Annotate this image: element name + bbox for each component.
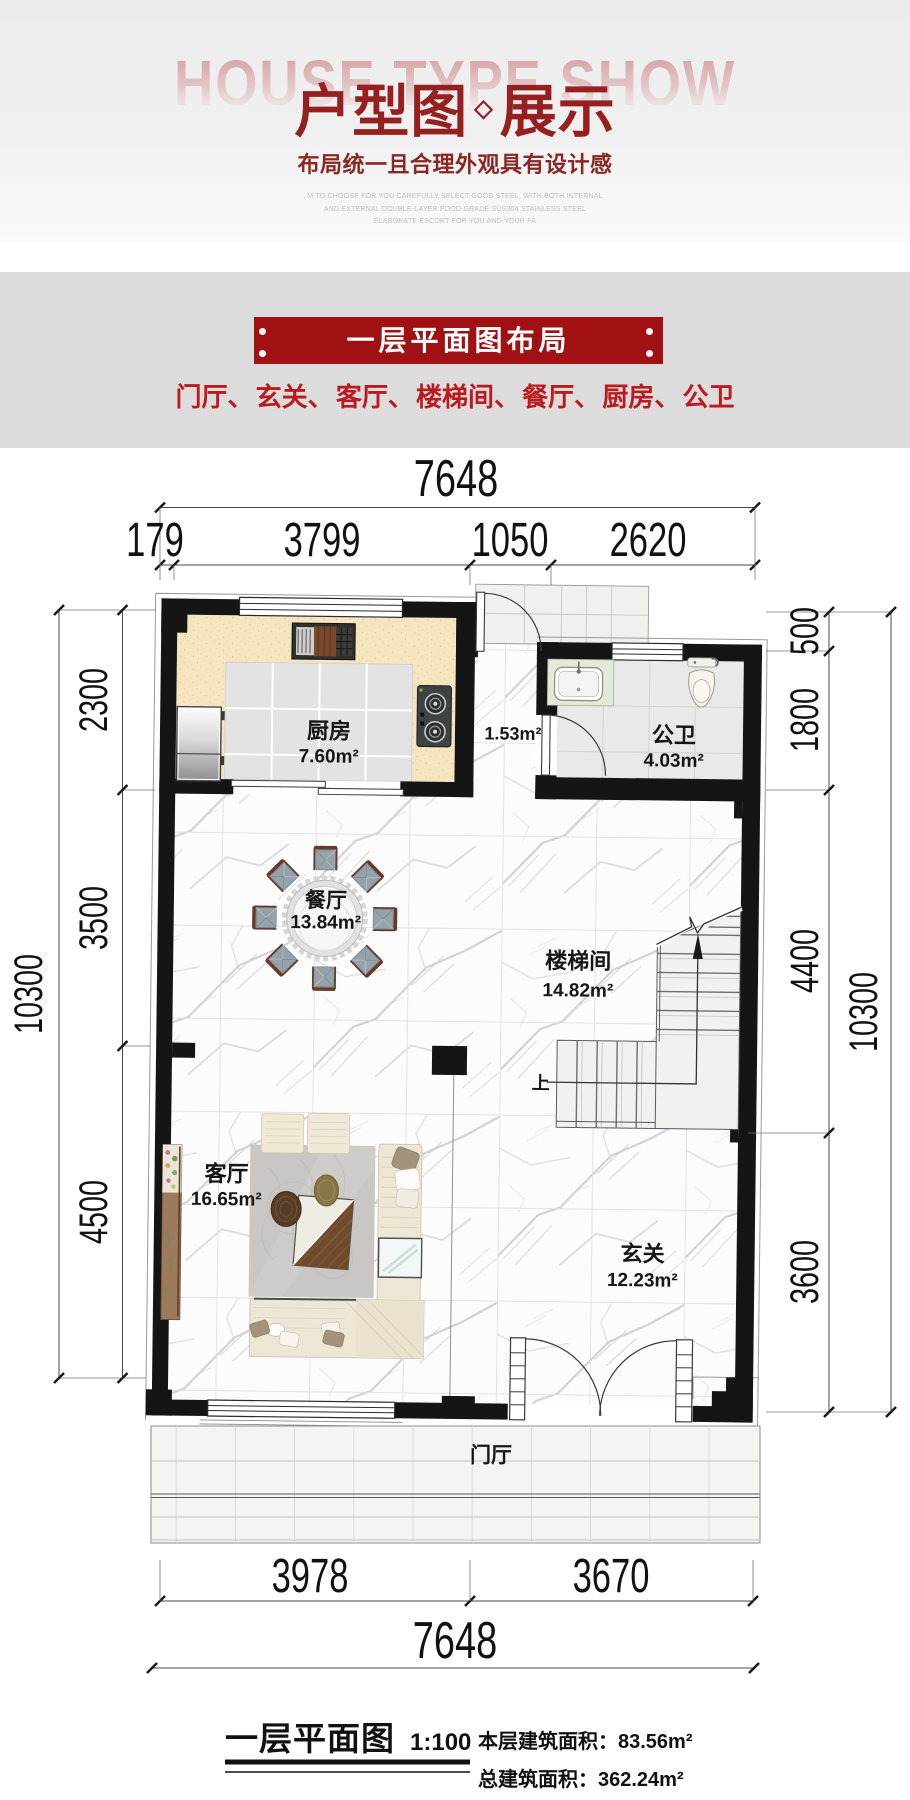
- svg-text:餐厅: 餐厅: [305, 888, 347, 913]
- svg-text:4.03m²: 4.03m²: [643, 750, 703, 772]
- svg-text:7648: 7648: [413, 1611, 497, 1669]
- svg-text:玄关: 玄关: [620, 1241, 664, 1267]
- svg-text:3670: 3670: [573, 1548, 650, 1602]
- svg-text:4400: 4400: [782, 929, 827, 993]
- svg-text:一层平面图: 一层平面图: [225, 1720, 395, 1757]
- svg-text:500: 500: [782, 607, 827, 655]
- svg-text:16.65m²: 16.65m²: [191, 1189, 262, 1211]
- svg-text:本层建筑面积：83.56m²: 本层建筑面积：83.56m²: [478, 1729, 693, 1753]
- svg-text:客厅: 客厅: [204, 1161, 248, 1187]
- svg-text:1800: 1800: [782, 688, 827, 752]
- svg-text:3500: 3500: [71, 886, 116, 950]
- svg-text:1:100: 1:100: [410, 1729, 471, 1756]
- svg-text:楼梯间: 楼梯间: [545, 948, 611, 974]
- svg-text:3978: 3978: [272, 1548, 349, 1602]
- svg-text:公卫: 公卫: [652, 722, 696, 748]
- svg-text:2300: 2300: [71, 668, 116, 732]
- svg-text:总建筑面积：362.24m²: 总建筑面积：362.24m²: [478, 1767, 684, 1791]
- svg-text:7.60m²: 7.60m²: [298, 746, 358, 768]
- svg-text:3600: 3600: [782, 1240, 827, 1304]
- svg-text:上: 上: [532, 1073, 550, 1093]
- svg-text:2620: 2620: [610, 512, 687, 566]
- svg-text:10300: 10300: [841, 972, 886, 1052]
- svg-text:10300: 10300: [6, 954, 51, 1034]
- svg-text:1.53m²: 1.53m²: [484, 723, 541, 744]
- svg-text:3799: 3799: [284, 512, 361, 566]
- svg-text:179: 179: [126, 512, 184, 566]
- svg-text:14.82m²: 14.82m²: [542, 980, 613, 1002]
- svg-text:13.84m²: 13.84m²: [290, 912, 361, 934]
- svg-text:门厅: 门厅: [470, 1443, 512, 1467]
- svg-text:4500: 4500: [71, 1180, 116, 1244]
- svg-text:厨房: 厨房: [307, 718, 351, 744]
- svg-text:7648: 7648: [414, 449, 498, 507]
- svg-text:1050: 1050: [472, 512, 549, 566]
- svg-text:12.23m²: 12.23m²: [607, 1270, 678, 1292]
